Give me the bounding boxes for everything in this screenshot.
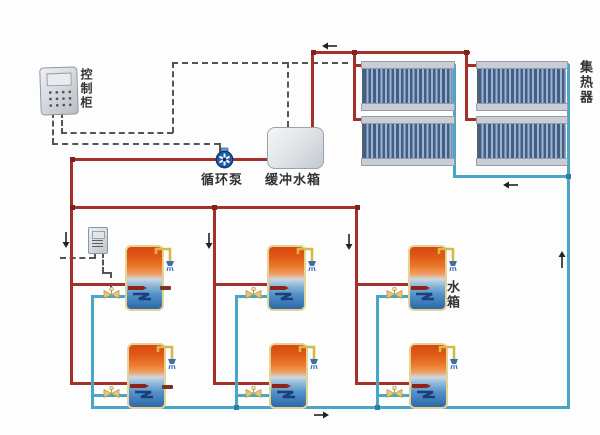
buffer-tank-label: 缓冲水箱 [265, 169, 321, 188]
cold-col3-drop [376, 295, 379, 408]
hot-inlet-tank5 [213, 382, 273, 385]
cabinet-keypad [46, 88, 73, 109]
pipe-junction [70, 205, 75, 210]
flow-arrow-left-icon [322, 42, 338, 50]
valve-icon [245, 287, 262, 300]
pipe-junction [566, 174, 571, 179]
collector-header-bar [361, 158, 455, 166]
collector-header-bar [361, 116, 455, 124]
hot-collector-drop-left [353, 51, 356, 121]
shower-icon [153, 246, 179, 274]
shower-icon [295, 246, 321, 274]
flow-arrow-down-icon [205, 233, 213, 249]
hot-inlet-tank4 [70, 382, 130, 385]
cold-col1-drop [91, 295, 94, 408]
tank-controller-keys [92, 240, 103, 249]
collector-header-bar [476, 103, 568, 111]
pipe-junction [464, 50, 469, 55]
pipe-junction [375, 405, 380, 410]
flow-arrow-right-icon [313, 411, 329, 419]
hot-pump-line [70, 158, 267, 161]
valve-icon [103, 287, 120, 300]
flow-arrow-down-icon [62, 232, 70, 248]
pipe-junction [234, 405, 239, 410]
valve-icon [245, 386, 262, 399]
tank-controller [88, 227, 108, 254]
tank-controller-display [92, 231, 105, 239]
tank-outlet-stub [160, 286, 171, 290]
shower-icon [297, 344, 323, 372]
valve-icon [386, 287, 403, 300]
sensor-wire [60, 257, 95, 259]
shower-icon [437, 344, 463, 372]
hot-right-downcomer [355, 206, 358, 385]
collector-panel-2 [477, 62, 566, 110]
buffer-water-tank [267, 127, 324, 169]
pipe-junction [352, 50, 357, 55]
water-tank-label: 水箱 [444, 280, 458, 310]
valve-icon [386, 386, 403, 399]
control-wire [61, 112, 63, 134]
shower-icon [155, 344, 181, 372]
hot-collector-drop-right [465, 51, 468, 121]
flow-arrow-left-icon [503, 181, 519, 189]
hot-riser-buffer-to-collector [311, 52, 314, 127]
collector-label: 集热器 [577, 60, 591, 105]
hot-inlet-tank3 [355, 283, 411, 286]
collector-panel-1 [362, 62, 453, 110]
control-wire-to-buffer [287, 62, 289, 127]
collector-panel-4 [477, 117, 566, 165]
control-cabinet-label: 控制柜 [79, 68, 93, 110]
control-wire-to-collector [172, 62, 348, 64]
circulation-pump-label: 循环泵 [201, 169, 243, 188]
hot-top-header-pipe [311, 51, 470, 54]
tank-outlet-stub [162, 385, 173, 389]
shower-icon [436, 246, 462, 274]
collector-header-bar [476, 61, 568, 69]
control-wire [172, 62, 174, 133]
pipe-junction [355, 205, 360, 210]
cold-collector-link [453, 175, 570, 178]
control-wire-to-pump [52, 143, 220, 145]
pipe-junction [311, 50, 316, 55]
pipe-junction [70, 157, 75, 162]
collector-header-bar [476, 158, 568, 166]
hot-inlet-tank6 [355, 382, 413, 385]
hot-inlet-tank1 [70, 283, 128, 286]
cabinet-display [46, 73, 71, 87]
collector-header-bar [361, 103, 455, 111]
collector-panel-3 [362, 117, 453, 165]
hot-inlet-tank2 [213, 283, 271, 286]
flow-arrow-up-icon [558, 251, 566, 268]
solar-water-heating-diagram: 控制柜 循环泵 缓冲水箱 集热器 水箱 [0, 0, 600, 435]
control-wire [52, 112, 54, 144]
control-cabinet [39, 66, 79, 115]
valve-icon [103, 386, 120, 399]
control-wire [61, 132, 173, 134]
sensor-wire [102, 252, 104, 273]
cold-col2-drop [235, 295, 238, 408]
pipe-junction [212, 205, 217, 210]
hot-left-downcomer [70, 158, 73, 385]
collector-header-bar [361, 61, 455, 69]
collector-header-bar [476, 116, 568, 124]
flow-arrow-down-icon [345, 234, 353, 250]
hot-mid-downcomer [213, 206, 216, 385]
